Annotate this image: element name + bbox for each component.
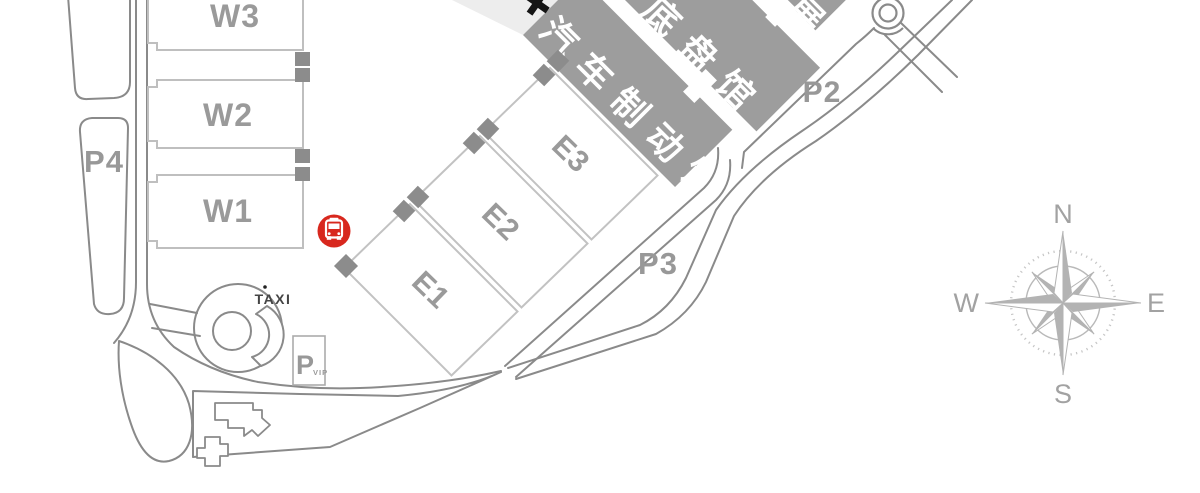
compass-rose-icon: N S W E: [954, 199, 1166, 409]
north-lot-shape: [68, 0, 130, 99]
road-roundabout-stub: [150, 304, 200, 336]
taxi-label: TAXI: [255, 291, 292, 307]
p2-label: P2: [803, 76, 842, 109]
bus-icon: [318, 215, 351, 248]
taxi-roundabout-crescent: [252, 306, 284, 366]
compass-cardinal-points: [985, 231, 1141, 375]
taxi-dot: [263, 285, 267, 289]
compass-east-label: E: [1147, 288, 1165, 318]
hall-w3-label: W3: [210, 0, 260, 34]
leaf-island-shape: [119, 341, 193, 462]
p-vip-sub-label: VIP: [313, 368, 328, 377]
venue-map: 汽车制动馆 车底盘馆 展: [0, 0, 1200, 493]
compass-north-label: N: [1053, 199, 1073, 229]
p-vip: P VIP: [293, 336, 328, 385]
hall-w2-label: W2: [203, 97, 253, 133]
taxi-roundabout-inner: [213, 312, 251, 350]
hall-w1-label: W1: [203, 193, 253, 229]
small-roundabout: [873, 0, 904, 34]
compass-west-label: W: [954, 288, 980, 318]
p3-label: P3: [638, 246, 678, 281]
p4-label: P4: [84, 144, 124, 179]
compass-south-label: S: [1054, 379, 1072, 409]
